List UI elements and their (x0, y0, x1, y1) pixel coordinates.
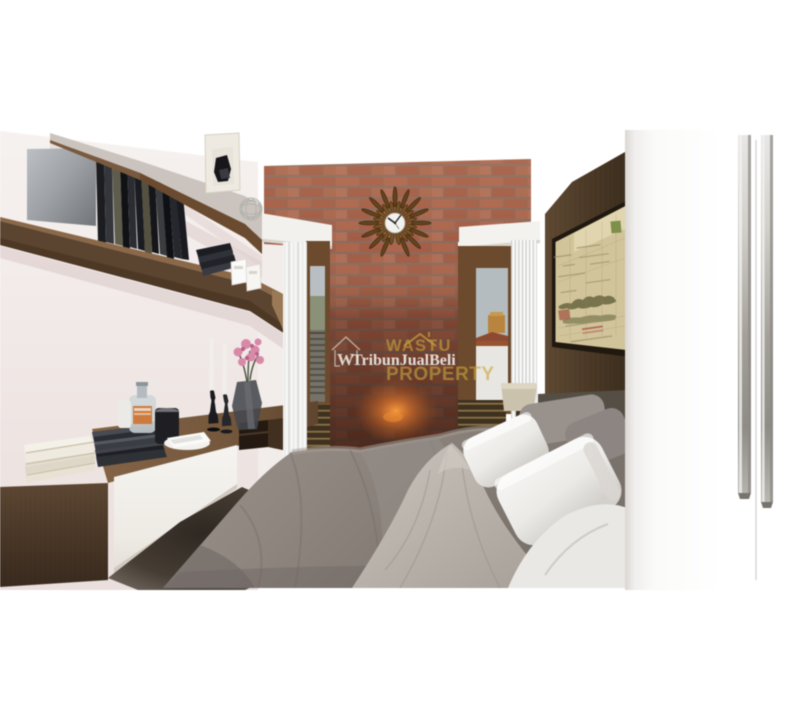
svg-text:PROPERTY: PROPERTY (386, 364, 495, 385)
